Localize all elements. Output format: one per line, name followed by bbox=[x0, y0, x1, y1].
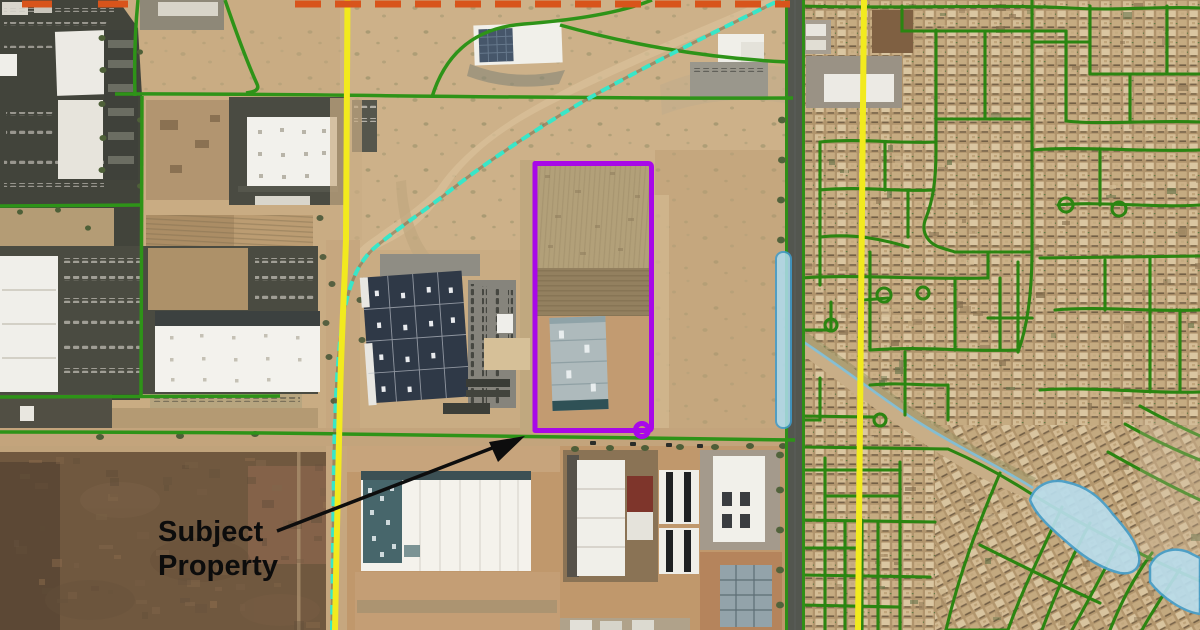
svg-text:Property: Property bbox=[158, 550, 278, 582]
svg-text:Subject: Subject bbox=[158, 516, 264, 548]
